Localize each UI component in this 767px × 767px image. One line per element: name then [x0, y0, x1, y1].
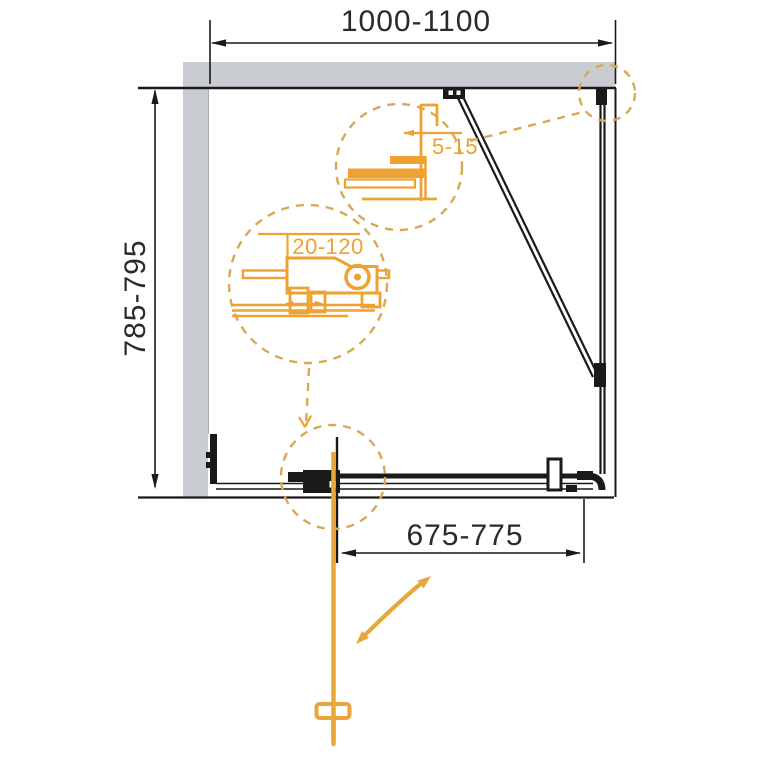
- callout-circle-carriage: [229, 205, 387, 363]
- shower-enclosure-plan-drawing: 1000-1100 785-795 675-775 5-15 20-120: [0, 0, 767, 767]
- door-handle: [317, 452, 350, 744]
- glass-mid-bracket: [594, 363, 606, 387]
- wall-left: [183, 62, 209, 498]
- dimension-side-depth: [151, 89, 158, 489]
- dimension-label-top-width: 1000-1100: [266, 7, 566, 37]
- detail-arrowhead-icon: [403, 130, 414, 136]
- fixed-glass-panel-right: [594, 88, 616, 497]
- door-carriage: [288, 472, 303, 482]
- arrowhead-up-icon: [151, 89, 158, 104]
- wall-profile-bracket: [210, 434, 217, 484]
- glass-top-bracket: [596, 88, 607, 105]
- support-bar-wall-clamp: [443, 87, 465, 99]
- slider-rail-bottom: [138, 434, 614, 498]
- arrowhead-right-icon: [566, 549, 581, 556]
- dimension-label-door-width: 675-775: [365, 521, 565, 551]
- door-motion-arrow: [356, 576, 431, 644]
- arrowhead-left-icon: [341, 549, 356, 556]
- arrowhead-left-icon: [211, 39, 226, 46]
- diagram-linework: [0, 0, 767, 767]
- support-bar: [443, 87, 598, 377]
- detail-label-carriage: 20-120: [288, 236, 368, 258]
- detail-label-wall-profile: 5-15: [415, 136, 495, 158]
- callout-circle-wall-profile: [336, 104, 462, 230]
- roller-bracket: [548, 459, 561, 490]
- arrowhead-down-icon: [151, 474, 158, 489]
- wall-top: [183, 62, 615, 88]
- arrowhead-right-icon: [598, 39, 613, 46]
- dashed-arrowhead-icon: [299, 416, 311, 428]
- dimension-label-side-depth: 785-795: [121, 198, 151, 398]
